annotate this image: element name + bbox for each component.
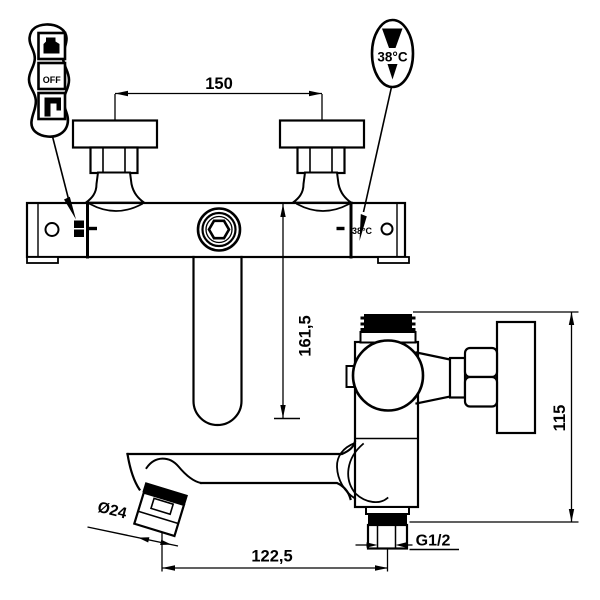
dim-122-5-label: 122,5 [251, 548, 292, 566]
right-flange [280, 121, 364, 148]
connector-neck [450, 358, 465, 398]
nut-side-lower [465, 377, 497, 407]
knob-side [353, 341, 423, 411]
dim-161-5-label: 161,5 [296, 315, 314, 356]
bottom-outlet [366, 507, 409, 549]
arrowhead [115, 91, 128, 96]
callout-leader-line [53, 137, 70, 202]
left-connector [73, 121, 157, 212]
arrowhead [375, 565, 388, 570]
left-flange [73, 121, 157, 148]
spout-front [194, 257, 242, 425]
dim-150: 150 [115, 75, 322, 120]
top-thread-outlet [361, 314, 416, 343]
diverter-knob-front [198, 209, 240, 251]
right-index-dash [337, 227, 345, 230]
arrowhead [569, 509, 574, 522]
right-nut [298, 148, 345, 174]
mixer-drawing-svg: 38°C 150 161,5 OFF [0, 0, 600, 600]
arrowhead [569, 312, 574, 325]
arrowhead [162, 565, 175, 570]
left-nut [91, 148, 138, 174]
dim-115: 115 [410, 312, 579, 522]
callout-leader-line [364, 87, 392, 212]
right-bell [293, 173, 351, 203]
left-cap-foot [27, 257, 58, 263]
tap-mode-box [39, 93, 66, 119]
arrowhead [280, 405, 285, 418]
arrowhead [138, 537, 149, 542]
g12-label: G1/2 [416, 533, 451, 550]
aerator-tip [133, 482, 188, 536]
side-view [128, 314, 536, 549]
left-bell [86, 173, 144, 203]
dim-122-5: 122,5 [162, 533, 388, 572]
o24-label: Ø24 [96, 499, 129, 523]
callout-temp-label: 38°C [377, 50, 407, 65]
wall-flange-side [497, 322, 535, 433]
dim-150-label: 150 [205, 75, 233, 93]
arrowhead [309, 91, 322, 96]
nut-side-upper [465, 348, 497, 377]
technical-drawing-page: 38°C 150 161,5 OFF [0, 0, 600, 600]
right-cap-foot [378, 257, 409, 263]
hex-socket [209, 221, 229, 238]
right-connector [280, 121, 364, 212]
spout-side [128, 442, 356, 537]
dim-115-label: 115 [551, 405, 569, 432]
off-label: OFF [43, 75, 61, 85]
left-index-dash [89, 227, 97, 230]
mode-selector-callout: OFF [29, 24, 76, 219]
